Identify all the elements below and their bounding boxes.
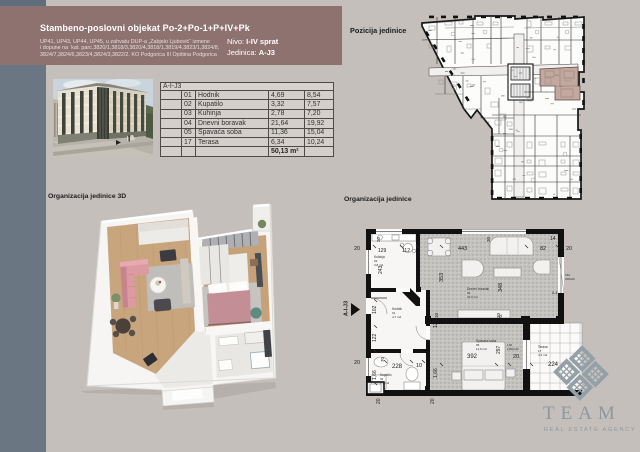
svg-text:14: 14 [550, 236, 556, 242]
svg-text:10: 10 [434, 312, 439, 318]
svg-text:297: 297 [496, 345, 502, 354]
svg-text:1,50: 1,50 [507, 343, 513, 347]
svg-text:122: 122 [372, 333, 378, 342]
svg-text:102: 102 [372, 305, 378, 314]
svg-text:348: 348 [498, 283, 504, 292]
svg-text:1,66: 1,66 [372, 370, 378, 380]
svg-text:4,7 m2: 4,7 m2 [392, 315, 402, 319]
svg-text:126: 126 [433, 319, 439, 328]
svg-text:30: 30 [486, 236, 491, 242]
svg-text:20: 20 [430, 398, 436, 404]
svg-text:11,6 m2: 11,6 m2 [476, 347, 487, 351]
svg-text:228: 228 [392, 364, 403, 370]
svg-text:REAL ESTATE AGENCY: REAL ESTATE AGENCY [544, 427, 636, 433]
svg-text:A-4: A-4 [552, 291, 558, 295]
svg-text:112: 112 [402, 248, 410, 254]
svg-text:20: 20 [376, 398, 382, 404]
svg-text:10.: 10. [498, 314, 503, 320]
svg-text:443: 443 [458, 246, 467, 252]
svg-text:3,8 m2: 3,8 m2 [374, 263, 384, 267]
svg-text:3,3 m2: 3,3 m2 [380, 381, 390, 385]
svg-text:392: 392 [467, 354, 478, 360]
svg-text:20: 20 [354, 246, 360, 252]
svg-text:129: 129 [378, 248, 387, 254]
svg-text:TEAM: TEAM [543, 403, 621, 424]
svg-text:20: 20 [376, 236, 381, 242]
svg-text:200x00: 200x00 [565, 277, 575, 281]
svg-text:82: 82 [540, 246, 546, 252]
svg-text:2,00x2,20: 2,00x2,20 [507, 347, 519, 351]
svg-text:353: 353 [439, 273, 445, 282]
svg-text:Dnevni boravak: Dnevni boravak [467, 287, 490, 291]
svg-text:23,0 m2: 23,0 m2 [467, 295, 478, 299]
svg-text:20: 20 [566, 246, 572, 252]
svg-text:10: 10 [416, 363, 422, 369]
svg-text:1,66: 1,66 [433, 368, 439, 378]
svg-text:20: 20 [354, 360, 360, 366]
svg-text:70: 70 [380, 356, 385, 362]
